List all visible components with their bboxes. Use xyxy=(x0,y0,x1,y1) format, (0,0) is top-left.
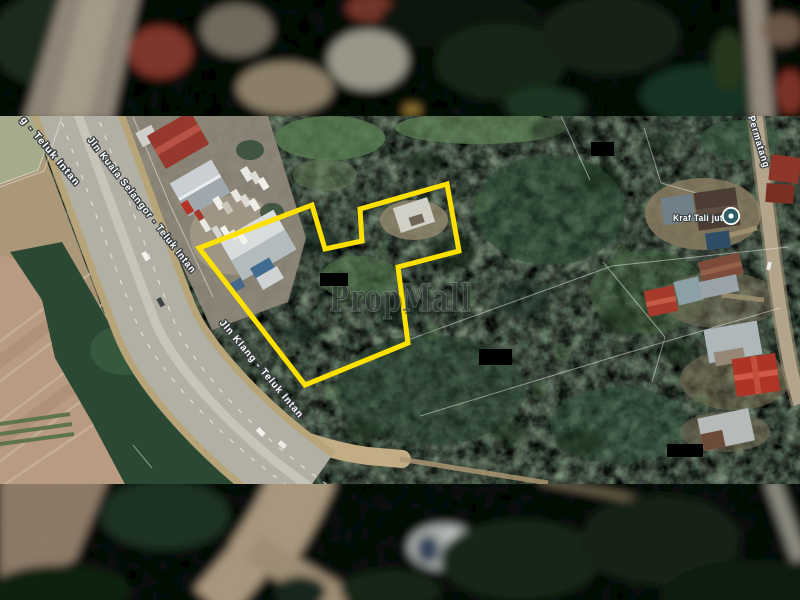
satellite-map-image: g - Teluk Intan Jln Kuala Selangor - Tel… xyxy=(0,0,800,600)
watermark: PropMall xyxy=(329,276,471,320)
poi-label: Kraf Tali jut xyxy=(673,213,723,224)
place-marker-icon[interactable] xyxy=(723,208,739,224)
blurred-top-band xyxy=(0,0,800,130)
redaction-box xyxy=(479,349,512,365)
map-canvas[interactable]: g - Teluk Intan Jln Kuala Selangor - Tel… xyxy=(0,0,800,600)
redaction-box xyxy=(591,142,614,156)
blurred-bottom-band xyxy=(0,470,800,600)
redaction-box xyxy=(320,273,348,286)
redaction-box xyxy=(667,444,703,457)
